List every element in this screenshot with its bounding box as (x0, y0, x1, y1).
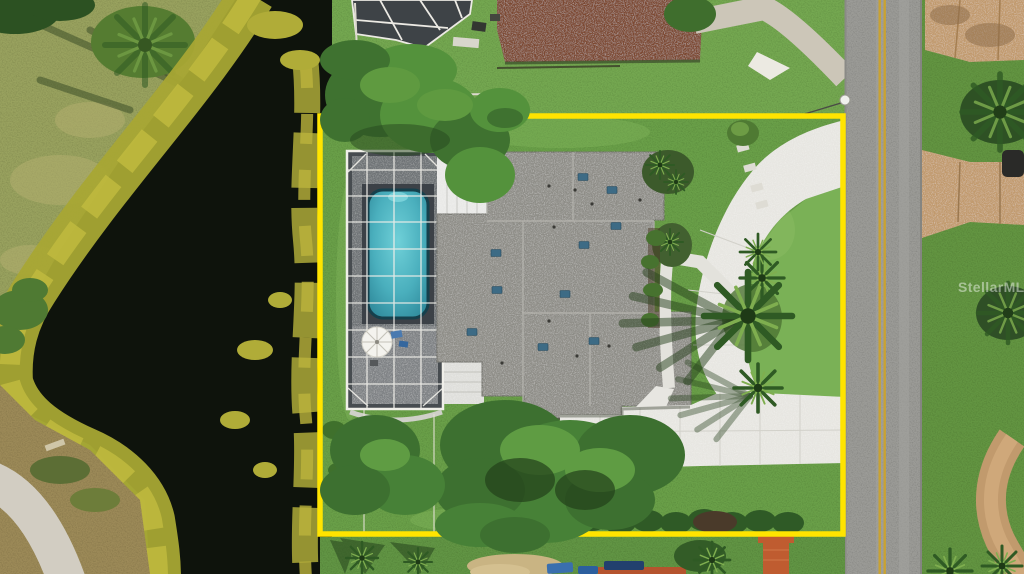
stellar-mls-watermark: StellarMLS (958, 279, 1024, 295)
brick-walkway (758, 536, 794, 574)
lanai-roof-south (444, 362, 484, 404)
aerial-photo: StellarMLS (0, 0, 1024, 574)
patio-umbrella (362, 327, 392, 357)
south-neighbor (320, 536, 845, 574)
pool-screen-enclosure (346, 150, 444, 420)
swimming-pool (368, 190, 428, 318)
parked-car (1002, 150, 1024, 177)
